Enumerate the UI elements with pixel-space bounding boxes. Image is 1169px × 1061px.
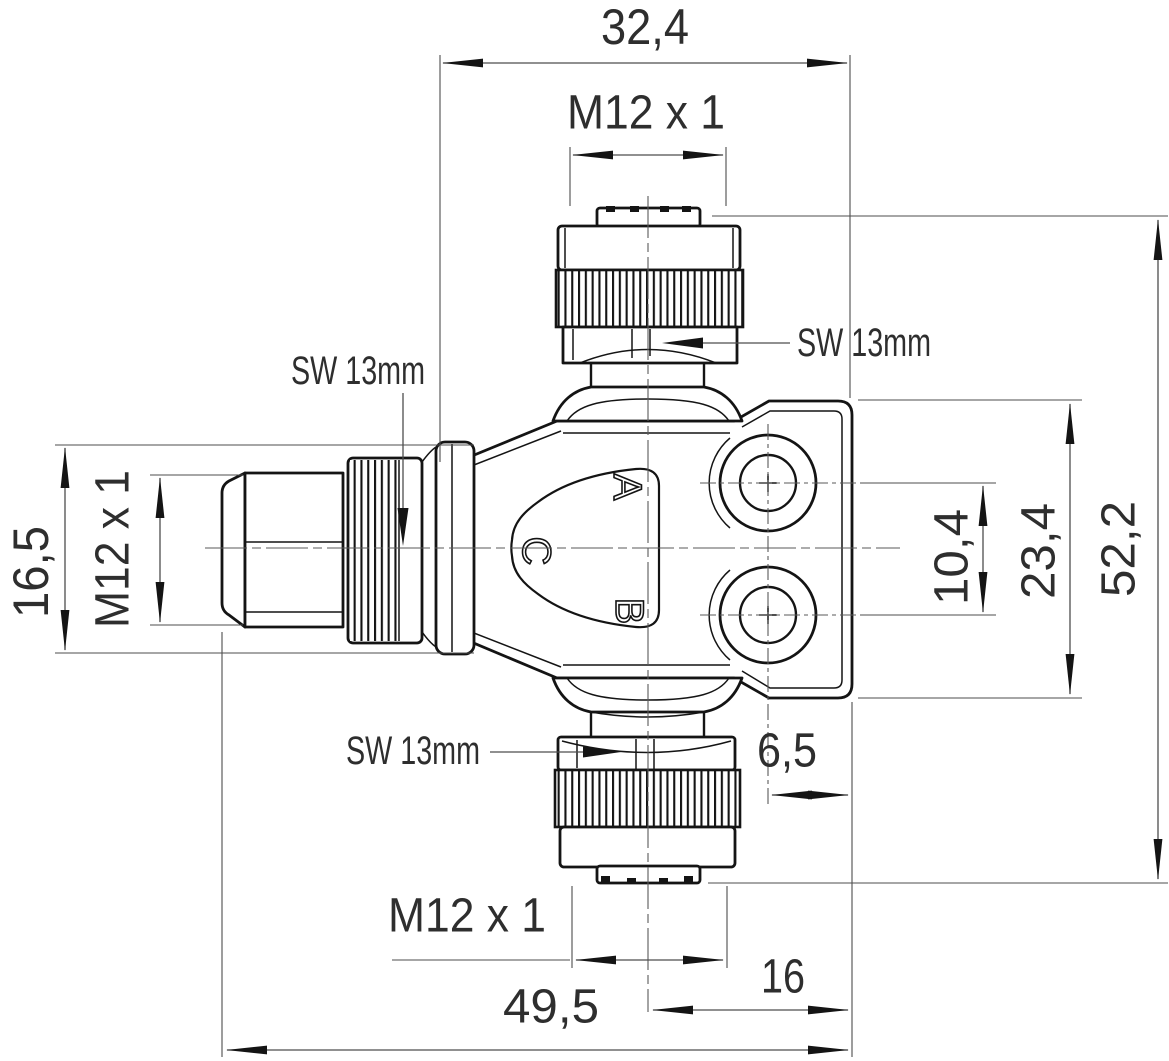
wrench-left-label: SW 13mm (291, 349, 425, 393)
top-coupling-nut (558, 226, 740, 270)
port-c-label: C (514, 537, 558, 566)
dim-hole-edge-offset: 6,5 (757, 725, 848, 796)
dim-left-thread-label: M12 x 1 (87, 470, 140, 628)
dim-top-thread-label: M12 x 1 (567, 87, 725, 140)
dim-total-height: 52,2 (1093, 220, 1159, 879)
left-thread-body (245, 473, 343, 627)
dim-center-to-edge-label: 16 (761, 951, 805, 1004)
m12-distributor-drawing: A C B (0, 0, 1169, 1061)
left-knurl-band (350, 460, 397, 641)
dim-left-height: 16,5 (3, 448, 65, 650)
dim-left-thread: M12 x 1 (87, 470, 161, 628)
dim-total-width-label: 49,5 (503, 981, 599, 1034)
wrench-top-label: SW 13mm (797, 321, 931, 365)
top-knurl-ring (556, 270, 743, 327)
port-b-label: B (607, 598, 651, 625)
dim-top-width-label: 32,4 (601, 0, 689, 55)
dim-hole-spacing: 10,4 (926, 486, 984, 612)
dim-top-width: 32,4 (443, 0, 847, 63)
dim-bottom-thread-label: M12 x 1 (388, 890, 546, 943)
port-a-label: A (605, 474, 649, 501)
dim-flange-height-label: 23,4 (1013, 503, 1066, 599)
left-rear-cap (222, 473, 245, 627)
dim-bottom-thread: M12 x 1 (388, 890, 723, 961)
dim-left-height-label: 16,5 (3, 526, 59, 618)
dim-hole-edge-offset-label: 6,5 (757, 725, 817, 778)
wrench-bottom-label: SW 13mm (346, 729, 480, 773)
dim-hole-spacing-label: 10,4 (926, 509, 979, 605)
dim-total-height-label: 52,2 (1093, 501, 1146, 597)
dim-flange-height: 23,4 (1013, 404, 1071, 694)
dim-top-thread: M12 x 1 (567, 87, 725, 156)
technical-drawing-canvas: A C B (0, 0, 1169, 1061)
dim-total-width: 49,5 (227, 981, 848, 1051)
